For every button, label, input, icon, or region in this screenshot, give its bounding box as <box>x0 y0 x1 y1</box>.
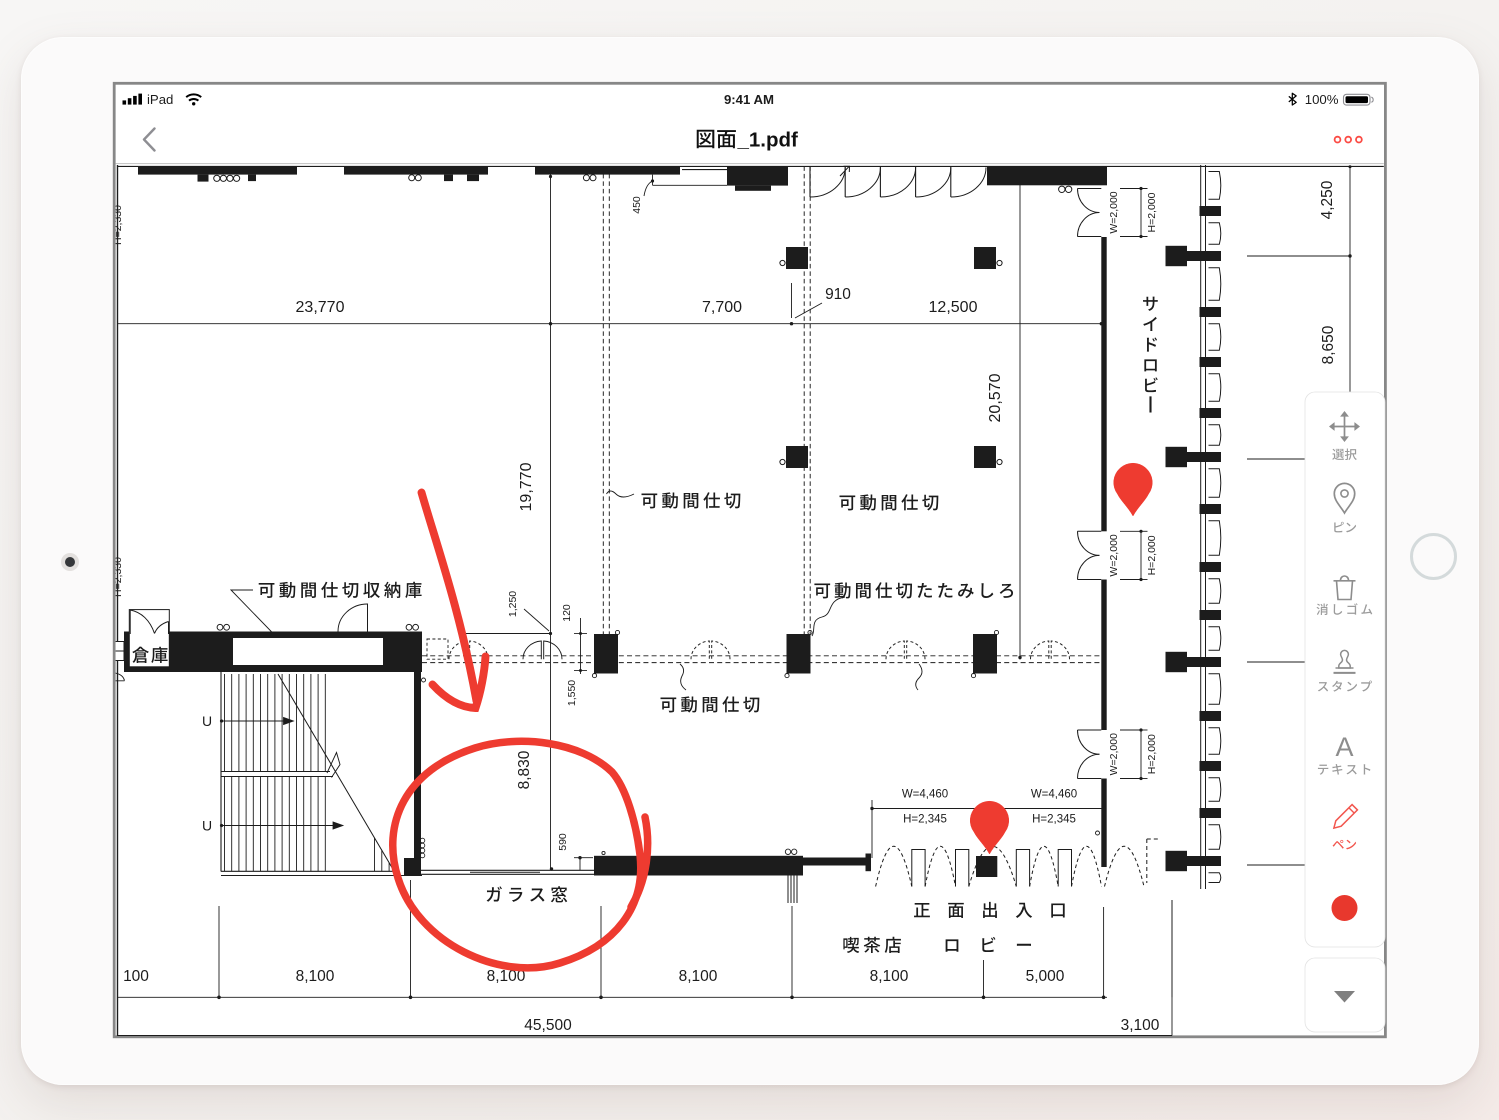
svg-text:9:41 AM: 9:41 AM <box>724 92 774 107</box>
svg-text:910: 910 <box>825 286 851 303</box>
svg-text:1,550: 1,550 <box>566 680 578 706</box>
svg-text:20,570: 20,570 <box>987 373 1004 422</box>
svg-text:H=2,345: H=2,345 <box>903 814 947 826</box>
svg-text:450: 450 <box>631 196 643 214</box>
svg-text:8,100: 8,100 <box>296 968 335 985</box>
svg-text:8,650: 8,650 <box>1320 325 1337 364</box>
svg-text:19,770: 19,770 <box>518 462 535 511</box>
svg-text:_1.pdf: _1.pdf <box>737 129 799 152</box>
svg-text:W=4,460: W=4,460 <box>902 789 948 801</box>
svg-text:H=2,000: H=2,000 <box>1146 535 1158 575</box>
svg-text:H=2,000: H=2,000 <box>1146 192 1158 232</box>
svg-text:4,250: 4,250 <box>1319 180 1336 219</box>
svg-text:W=2,000: W=2,000 <box>1108 733 1120 775</box>
svg-text:H=2,345: H=2,345 <box>1032 814 1076 826</box>
svg-text:3,100: 3,100 <box>1121 1017 1160 1034</box>
svg-text:1,250: 1,250 <box>507 591 519 617</box>
svg-text:5,000: 5,000 <box>1026 968 1065 985</box>
svg-text:45,500: 45,500 <box>524 1017 572 1034</box>
svg-text:A: A <box>1335 732 1353 762</box>
svg-text:8,100: 8,100 <box>679 968 718 985</box>
svg-text:iPad: iPad <box>147 92 173 107</box>
svg-text:W=2,000: W=2,000 <box>1108 534 1120 576</box>
svg-text:8,830: 8,830 <box>516 750 533 789</box>
svg-text:H=2,000: H=2,000 <box>1146 734 1158 774</box>
svg-text:100%: 100% <box>1305 92 1339 107</box>
svg-text:120: 120 <box>561 604 573 622</box>
svg-text:8,100: 8,100 <box>870 968 909 985</box>
svg-text:U: U <box>202 713 212 729</box>
svg-text:100: 100 <box>123 968 149 985</box>
svg-text:W=2,000: W=2,000 <box>1108 191 1120 233</box>
svg-text:7,700: 7,700 <box>702 299 742 316</box>
svg-text:W=4,460: W=4,460 <box>1031 789 1077 801</box>
svg-text:U: U <box>202 818 212 834</box>
svg-text:23,770: 23,770 <box>296 299 345 316</box>
svg-text:590: 590 <box>557 833 569 851</box>
svg-text:12,500: 12,500 <box>929 299 978 316</box>
